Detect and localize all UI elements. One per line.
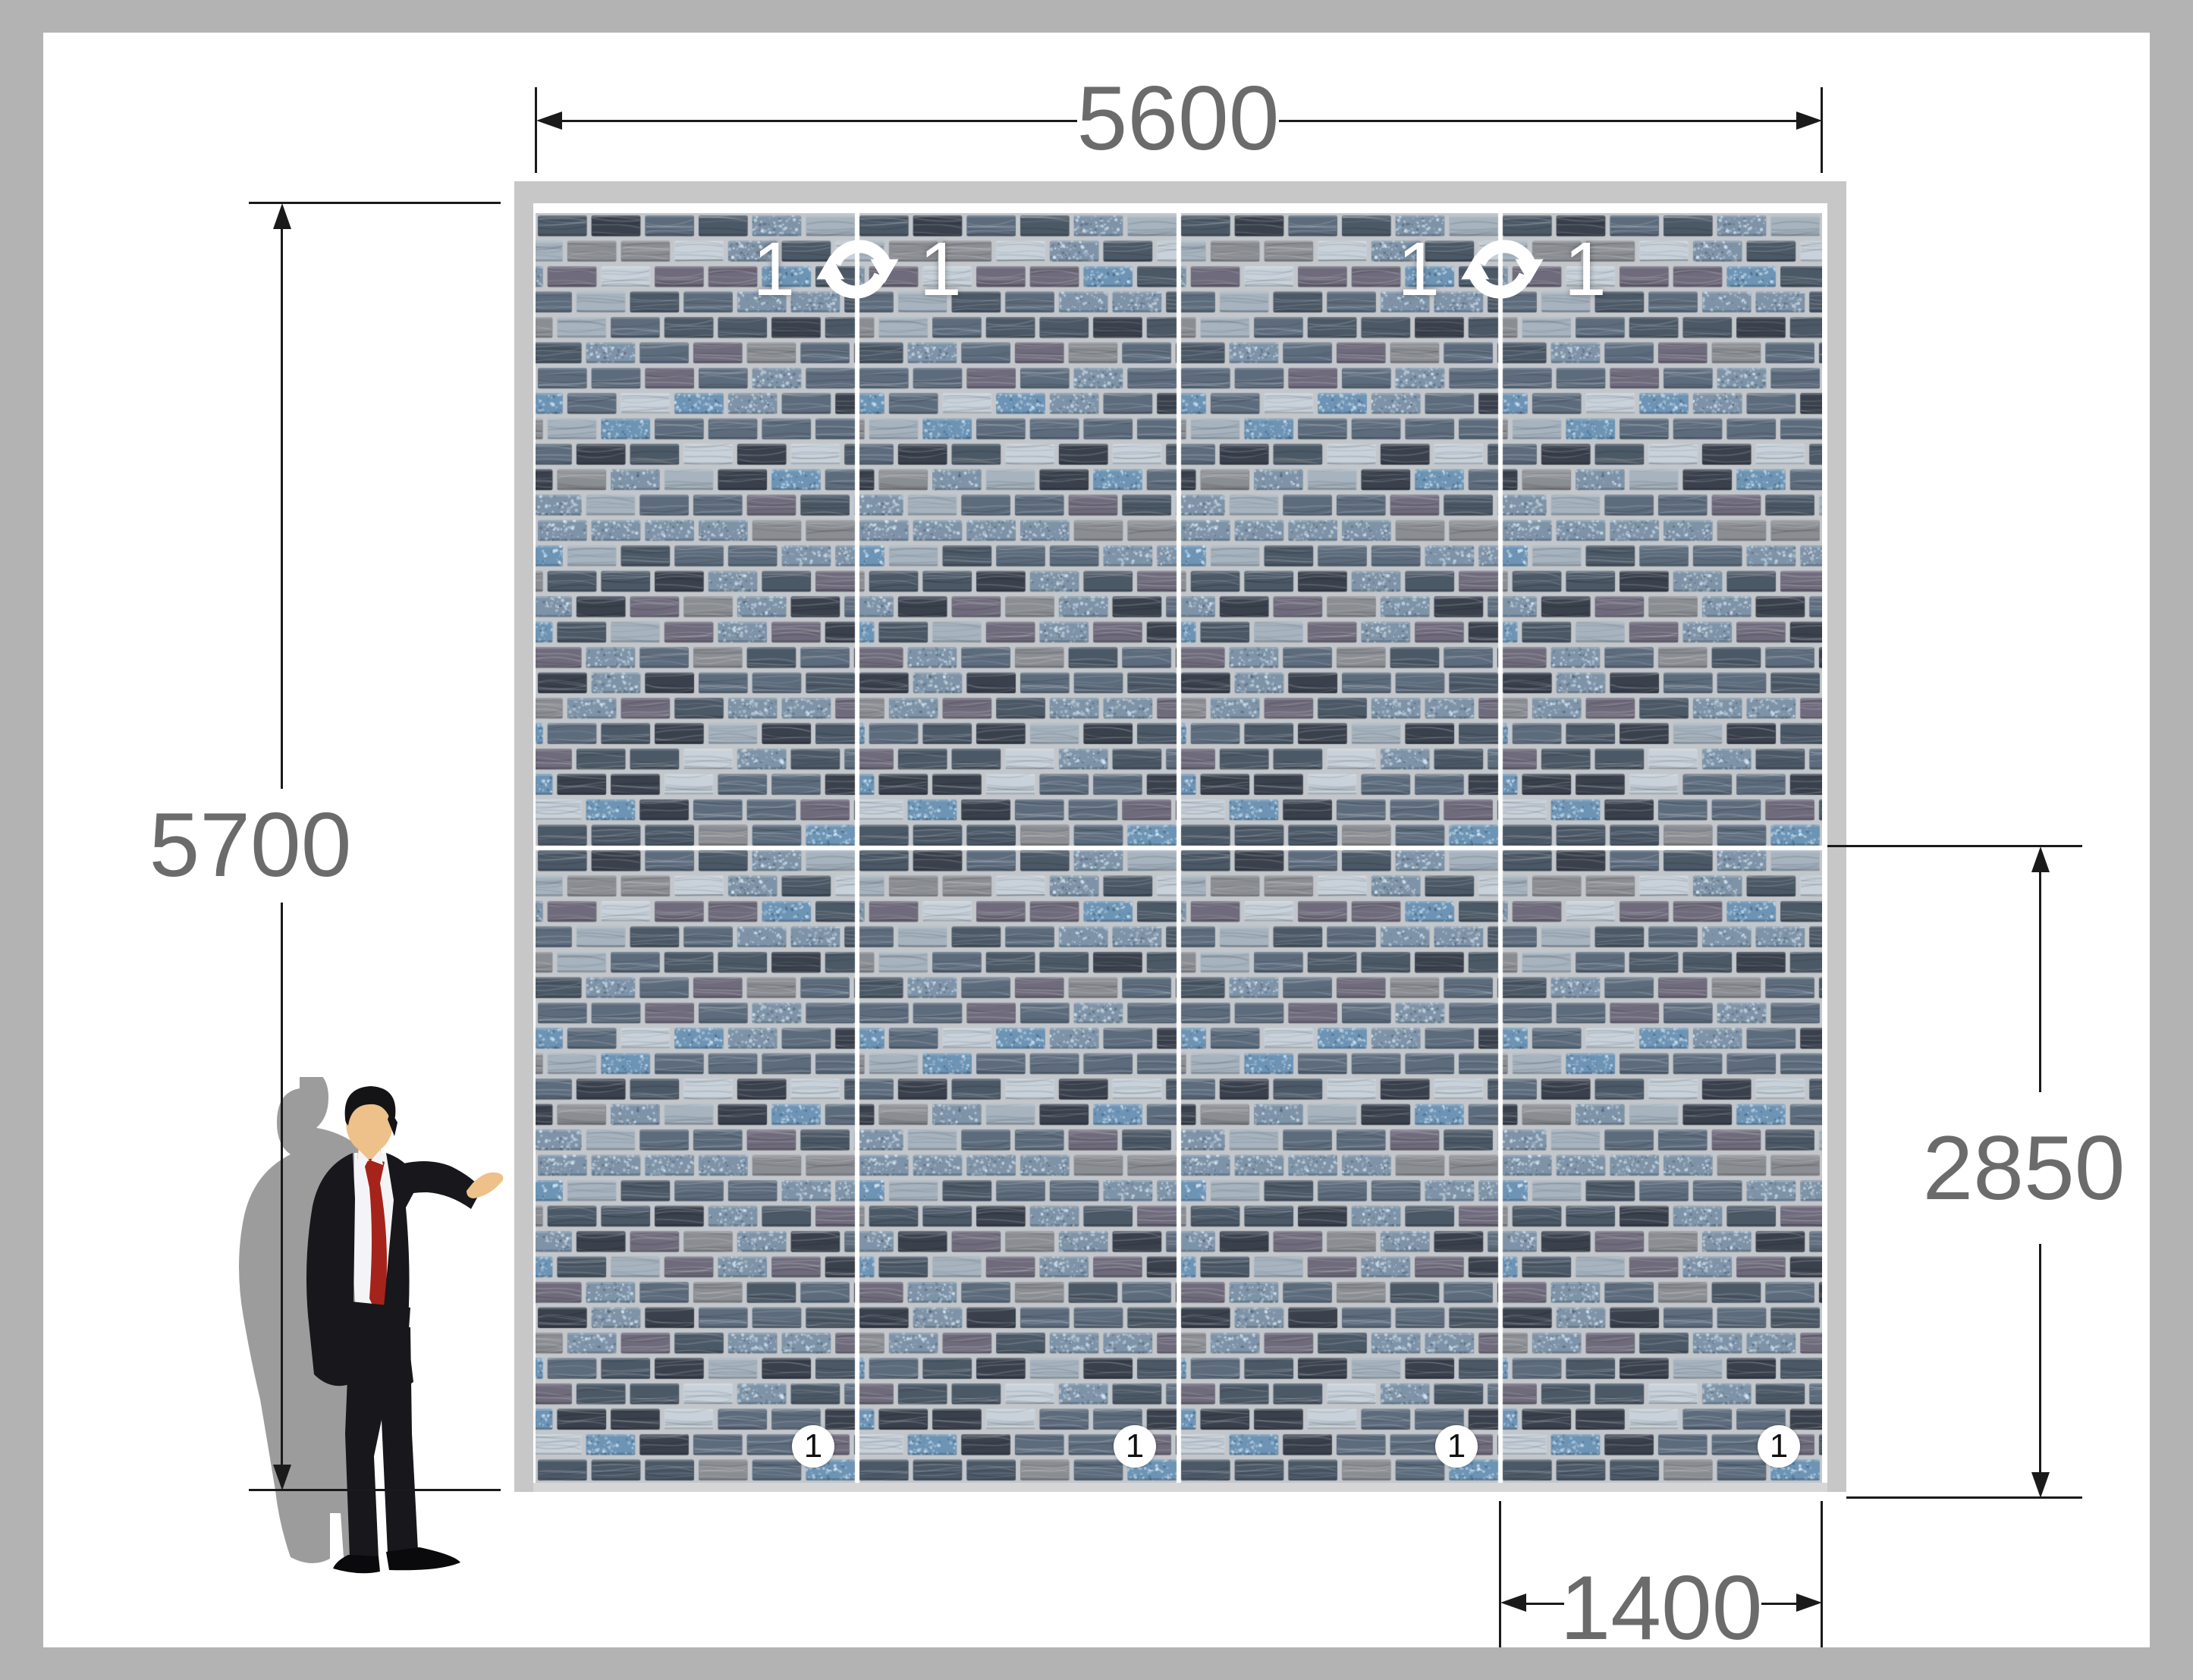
panel-number: 1 [1770,1430,1788,1463]
panel-number-badge: 1 [1435,1425,1478,1468]
dimension-panel-width-label: 1400 [1510,1562,1813,1653]
rotate-arrows-icon [807,219,907,319]
rotation-count-label: 1 [919,231,962,307]
presenter-figure [224,1077,504,1589]
panel-number: 1 [804,1430,822,1463]
elevation-drawing: 11111111 5600 5700 2850 140 [0,0,2193,1680]
dimension-line [559,120,1077,122]
panel-number: 1 [1447,1430,1466,1463]
rotation-marker: 11 [752,219,961,319]
dimension-line [2039,1244,2041,1472]
dimension-height-label: 5700 [99,799,402,890]
dimension-width-label: 5600 [1026,73,1330,164]
tiled-wall [514,181,1846,1492]
dimension-arrow [273,1465,291,1490]
extension-line [1821,87,1823,173]
dimension-line [1279,120,1798,122]
rotation-count-label: 1 [1564,231,1607,307]
rotation-marker: 11 [1397,219,1606,319]
dimension-line [281,226,283,789]
rotate-arrows-icon [1452,219,1552,319]
extension-line [1499,1501,1501,1653]
dimension-arrow [1796,111,1822,130]
panel-number-badge: 1 [1114,1425,1156,1468]
extension-line [535,87,537,173]
dimension-arrow [273,203,291,229]
dimension-arrow [2031,1472,2050,1498]
dimension-line [281,903,283,1466]
rotation-count-label: 1 [1397,231,1440,307]
dimension-arrow [536,111,562,130]
panel-number-badge: 1 [1758,1425,1800,1468]
dimension-line [2039,872,2041,1092]
dimension-arrow [2031,846,2050,872]
rotation-count-label: 1 [752,231,795,307]
tile-mosaic-panels [536,213,1822,1483]
extension-line [1821,1501,1823,1653]
panel-number-badge: 1 [792,1425,834,1468]
panel-number: 1 [1126,1430,1144,1463]
wall-base-strip [533,1483,1827,1492]
dimension-lower-height-label: 2850 [1872,1123,2176,1214]
